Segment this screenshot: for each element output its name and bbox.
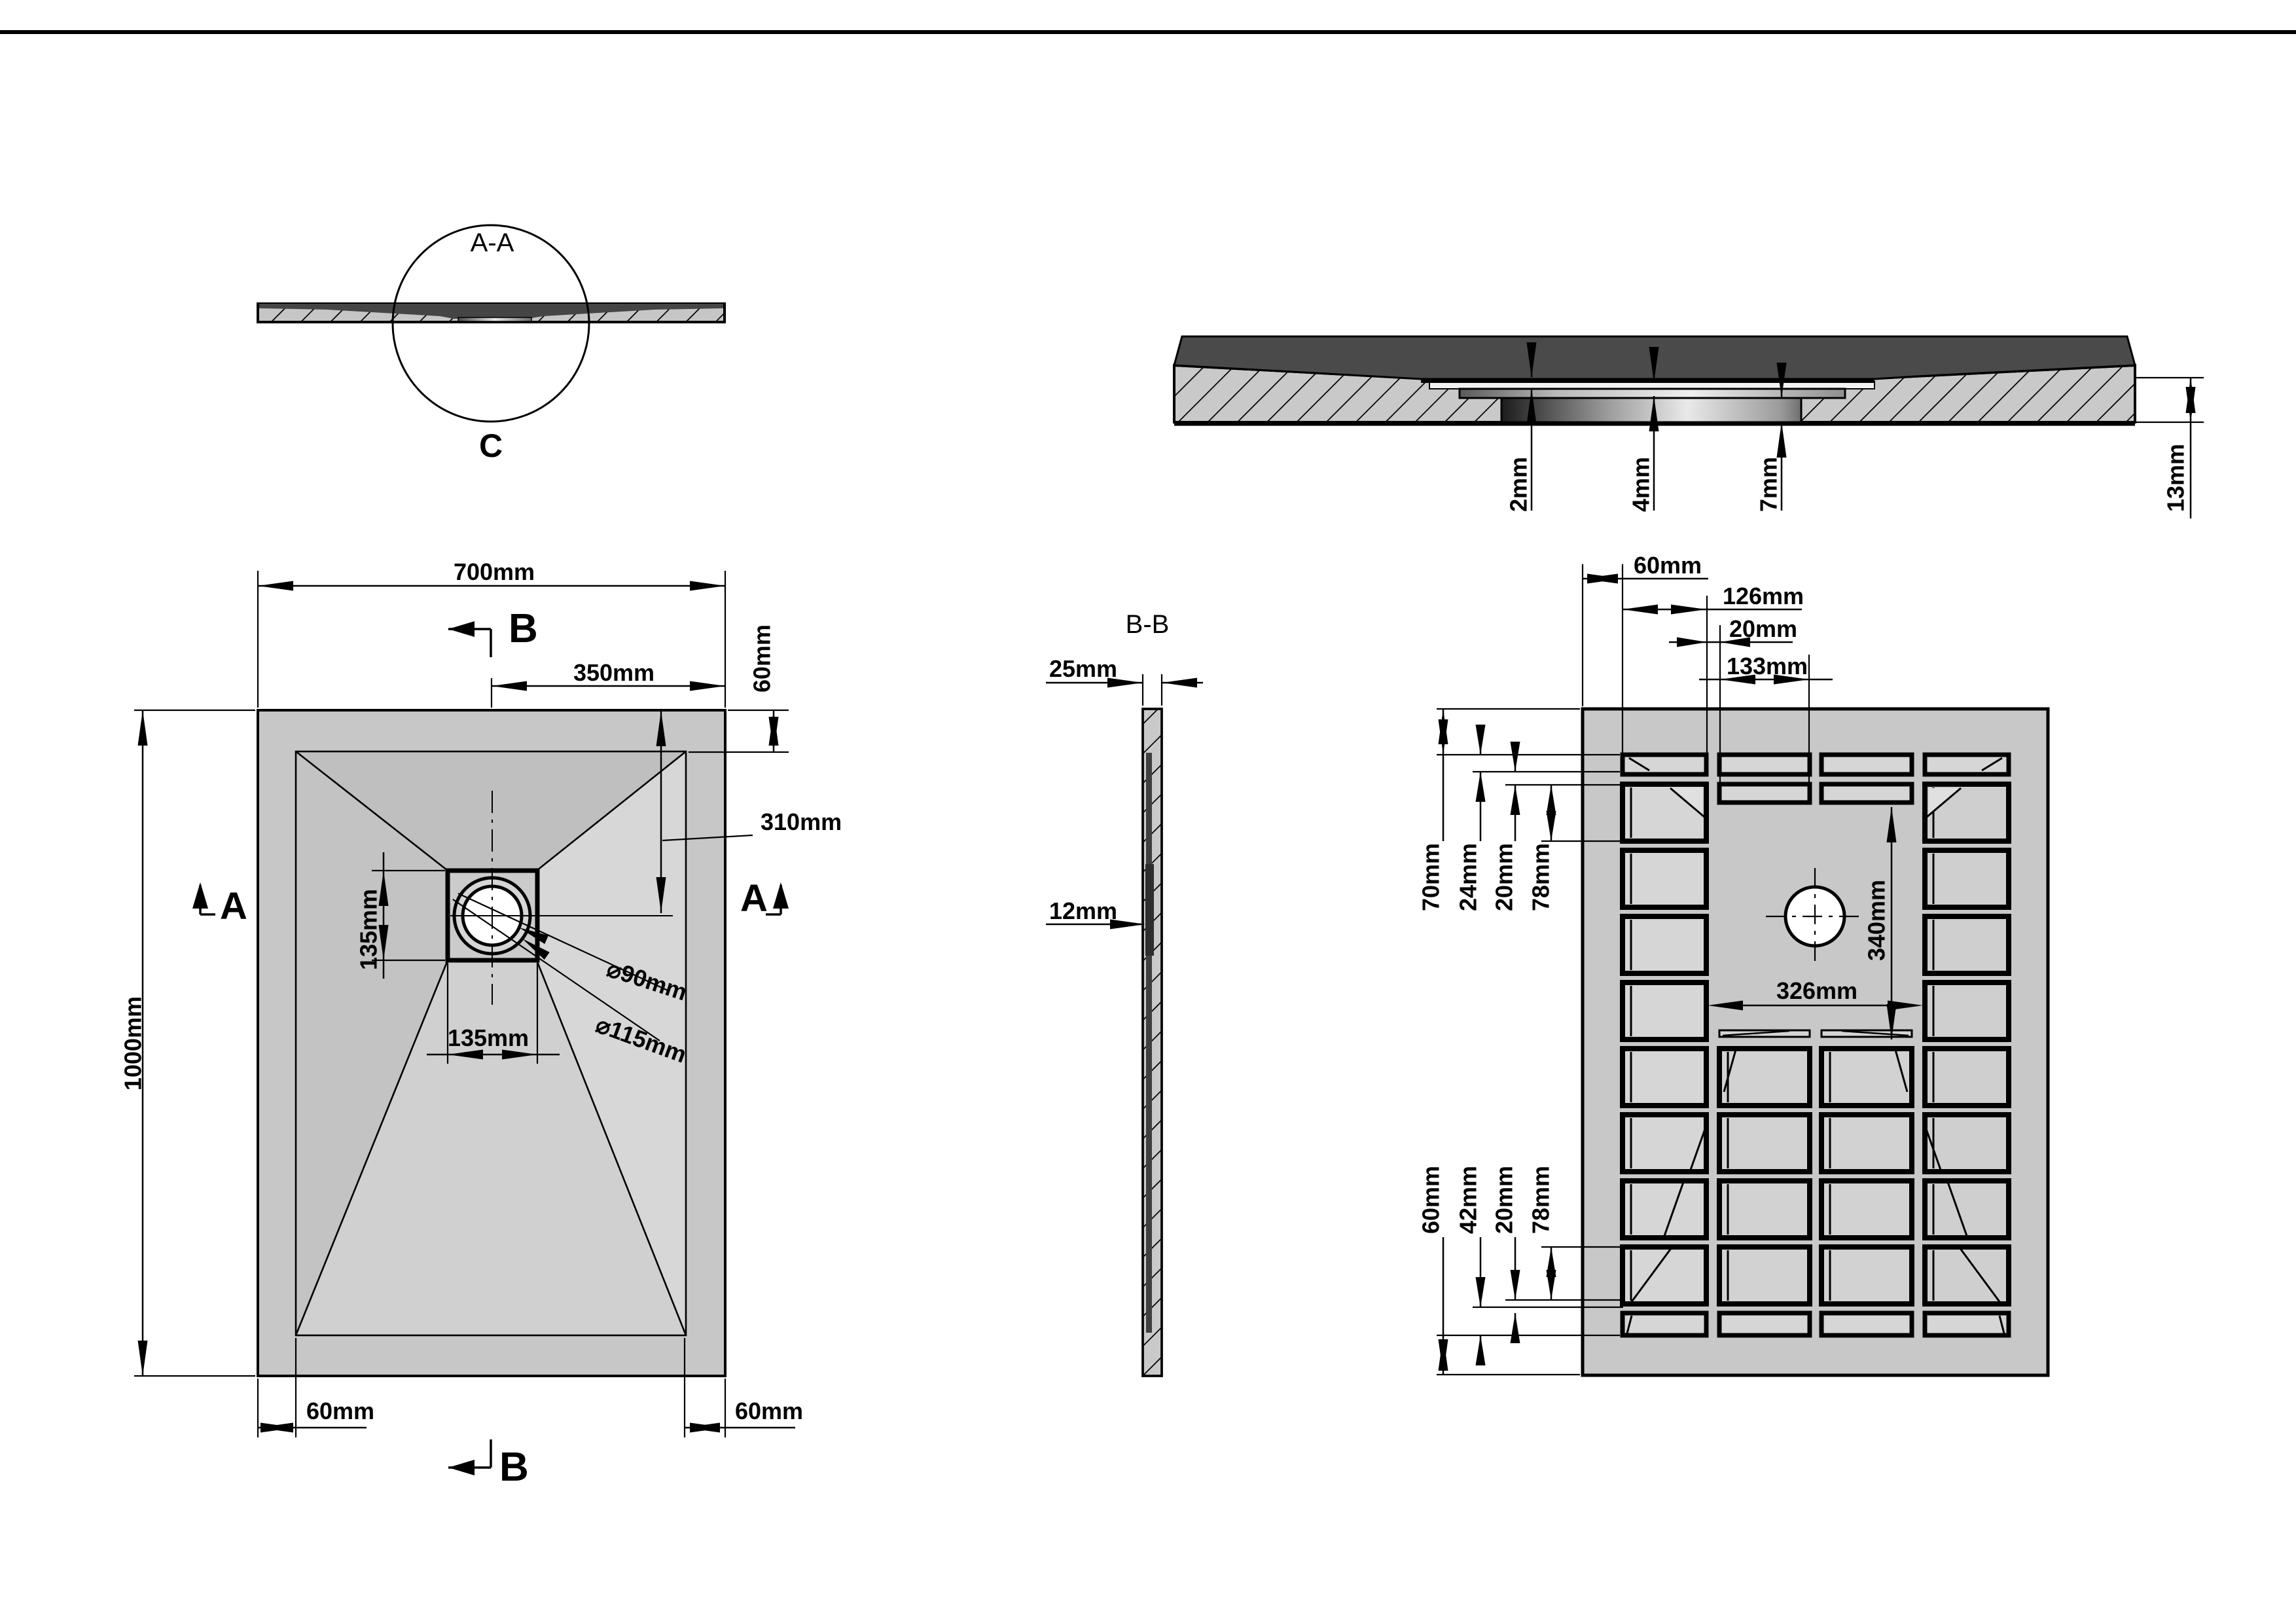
svg-text:350mm: 350mm — [573, 659, 655, 686]
svg-text:A-A: A-A — [471, 228, 514, 257]
svg-text:135mm: 135mm — [448, 1024, 529, 1051]
svg-text:60mm: 60mm — [1634, 552, 1702, 579]
svg-text:C: C — [479, 427, 503, 464]
svg-text:60mm: 60mm — [749, 624, 776, 693]
svg-text:42mm: 42mm — [1455, 1166, 1482, 1234]
svg-text:60mm: 60mm — [1418, 1166, 1444, 1234]
svg-text:700mm: 700mm — [454, 558, 535, 585]
svg-text:24mm: 24mm — [1455, 843, 1482, 911]
svg-text:B: B — [499, 1445, 529, 1490]
svg-text:20mm: 20mm — [1491, 843, 1518, 911]
svg-text:135mm: 135mm — [355, 889, 382, 970]
svg-text:133mm: 133mm — [1727, 653, 1808, 679]
svg-text:310mm: 310mm — [761, 808, 842, 835]
svg-text:20mm: 20mm — [1729, 615, 1797, 642]
svg-text:326mm: 326mm — [1776, 977, 1857, 1004]
svg-text:340mm: 340mm — [1863, 880, 1890, 961]
svg-text:78mm: 78mm — [1528, 843, 1554, 911]
svg-text:13mm: 13mm — [2162, 444, 2189, 512]
svg-text:70mm: 70mm — [1418, 843, 1444, 911]
svg-text:2mm: 2mm — [1505, 457, 1532, 512]
svg-text:78mm: 78mm — [1528, 1166, 1554, 1234]
svg-text:60mm: 60mm — [306, 1398, 374, 1424]
svg-text:4mm: 4mm — [1628, 457, 1655, 512]
svg-text:B: B — [509, 606, 538, 651]
svg-text:7mm: 7mm — [1755, 457, 1782, 512]
svg-text:B-B: B-B — [1126, 610, 1170, 639]
svg-text:A: A — [740, 877, 768, 920]
svg-text:126mm: 126mm — [1723, 583, 1804, 609]
svg-text:20mm: 20mm — [1491, 1166, 1518, 1234]
svg-text:60mm: 60mm — [735, 1398, 803, 1424]
svg-text:25mm: 25mm — [1049, 655, 1117, 682]
svg-text:12mm: 12mm — [1049, 897, 1117, 924]
svg-text:1000mm: 1000mm — [120, 996, 147, 1091]
svg-text:A: A — [220, 885, 247, 928]
